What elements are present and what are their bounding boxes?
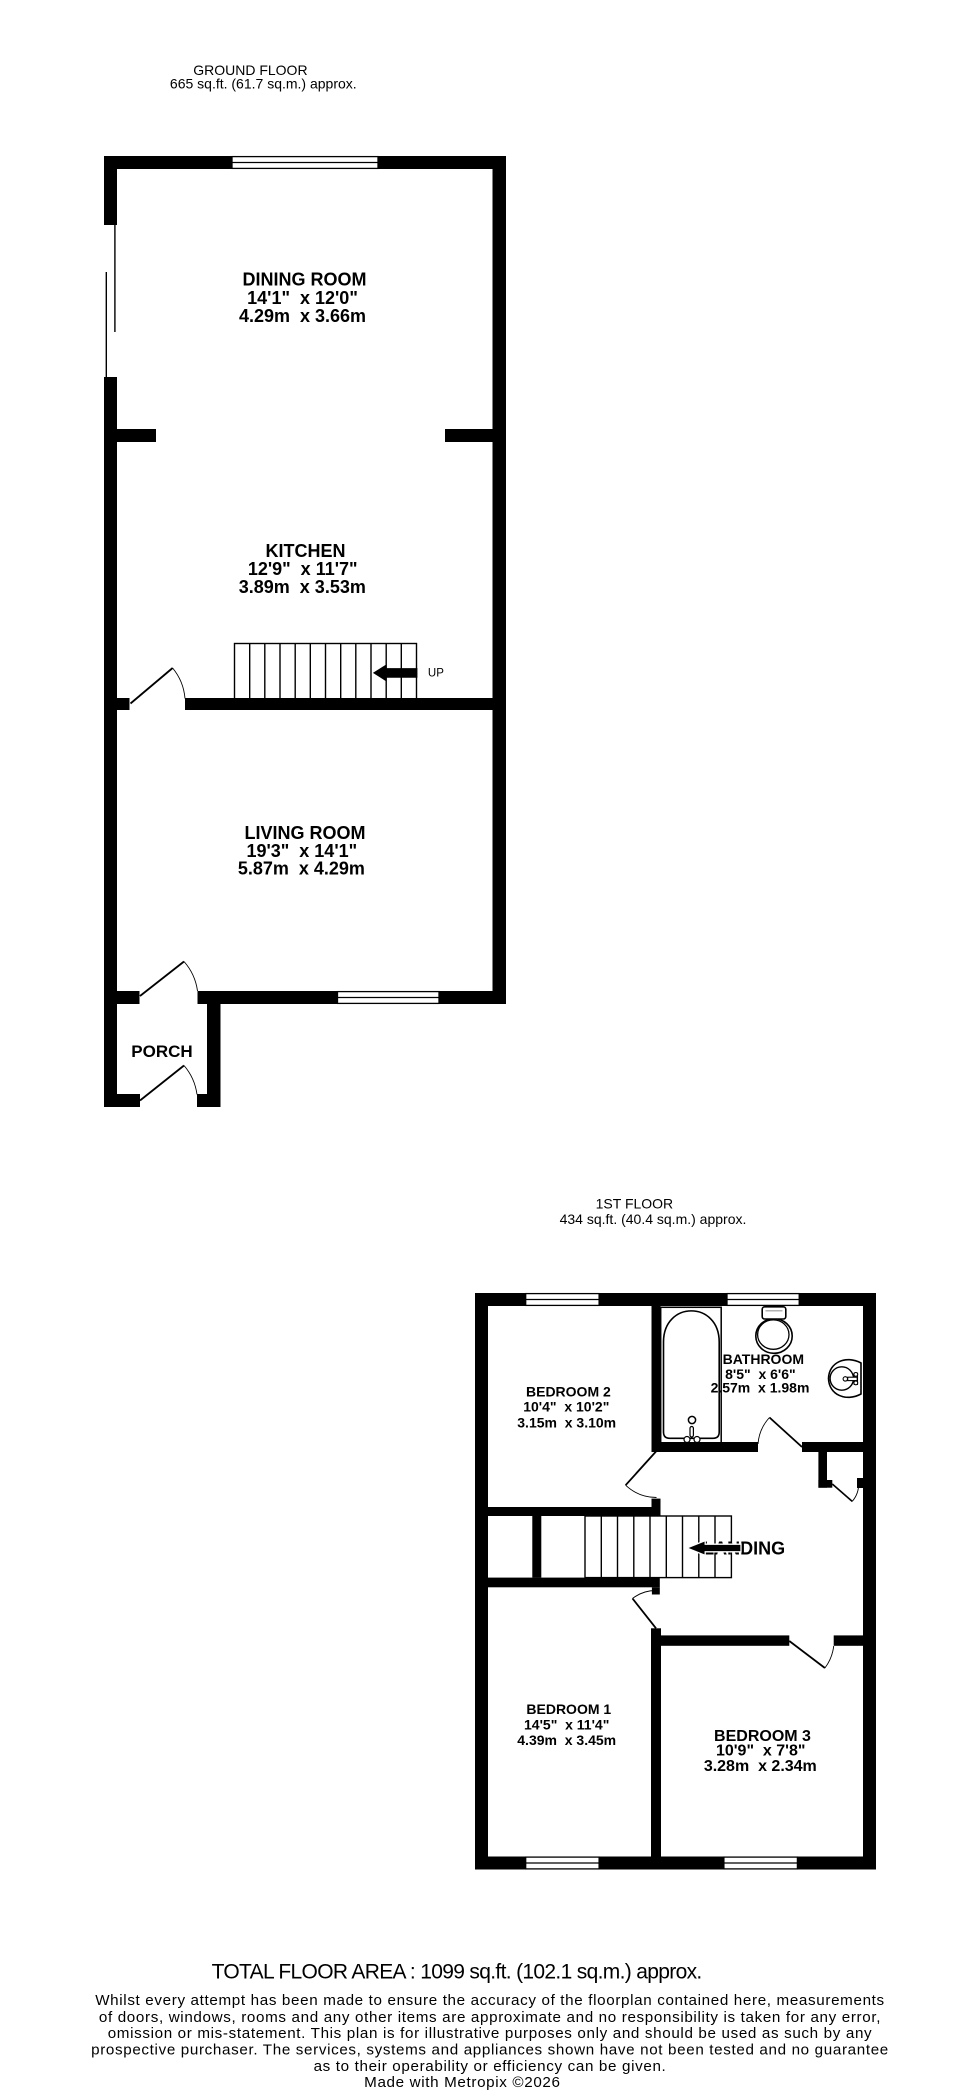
svg-text:665 sq.ft. (61.7 sq.m.) approx: 665 sq.ft. (61.7 sq.m.) approx. [170, 75, 357, 91]
svg-text:2.57m x 1.98m: 2.57m x 1.98m [711, 1380, 810, 1396]
svg-text:3.28m x 2.34m: 3.28m x 2.34m [704, 1758, 817, 1775]
svg-text:TOTAL FLOOR AREA : 1099 sq.ft.: TOTAL FLOOR AREA : 1099 sq.ft. (102.1 sq… [212, 1960, 702, 1983]
svg-text:Whilst every attempt has been: Whilst every attempt has been made to en… [95, 1992, 885, 2009]
svg-text:14'5" x 11'4": 14'5" x 11'4" [524, 1716, 609, 1732]
svg-text:omission or mis-statement. Thi: omission or mis-statement. This plan is … [108, 2025, 873, 2042]
svg-text:as to their operability or eff: as to their operability or efficiency ca… [314, 2058, 667, 2075]
svg-text:3.15m x 3.10m: 3.15m x 3.10m [517, 1414, 616, 1430]
svg-text:UP: UP [428, 668, 444, 680]
svg-text:KITCHEN: KITCHEN [266, 541, 346, 561]
svg-text:434 sq.ft. (40.4 sq.m.) approx: 434 sq.ft. (40.4 sq.m.) approx. [560, 1211, 747, 1227]
svg-text:3.89m x 3.53m: 3.89m x 3.53m [239, 577, 366, 597]
svg-text:1ST FLOOR: 1ST FLOOR [596, 1195, 674, 1211]
svg-text:BEDROOM 1: BEDROOM 1 [526, 1701, 611, 1717]
svg-text:BATHROOM: BATHROOM [723, 1351, 804, 1367]
svg-text:PORCH: PORCH [131, 1042, 192, 1061]
svg-text:Made with Metropix ©2026: Made with Metropix ©2026 [364, 2074, 560, 2091]
svg-text:of doors, windows, rooms and a: of doors, windows, rooms and any other i… [99, 2009, 881, 2026]
svg-text:10'9" x 7'8": 10'9" x 7'8" [716, 1743, 806, 1760]
svg-text:LIVING ROOM: LIVING ROOM [245, 823, 366, 843]
svg-text:5.87m x 4.29m: 5.87m x 4.29m [238, 859, 365, 879]
svg-text:10'4" x 10'2": 10'4" x 10'2" [523, 1399, 609, 1415]
svg-text:prospective purchaser. The ser: prospective purchaser. The services, sys… [91, 2042, 889, 2059]
svg-text:DINING ROOM: DINING ROOM [243, 270, 367, 290]
svg-text:BEDROOM 2: BEDROOM 2 [526, 1383, 611, 1399]
svg-text:14'1" x 12'0": 14'1" x 12'0" [247, 288, 358, 308]
svg-text:4.29m x 3.66m: 4.29m x 3.66m [239, 306, 366, 326]
svg-text:4.39m x 3.45m: 4.39m x 3.45m [517, 1732, 616, 1748]
